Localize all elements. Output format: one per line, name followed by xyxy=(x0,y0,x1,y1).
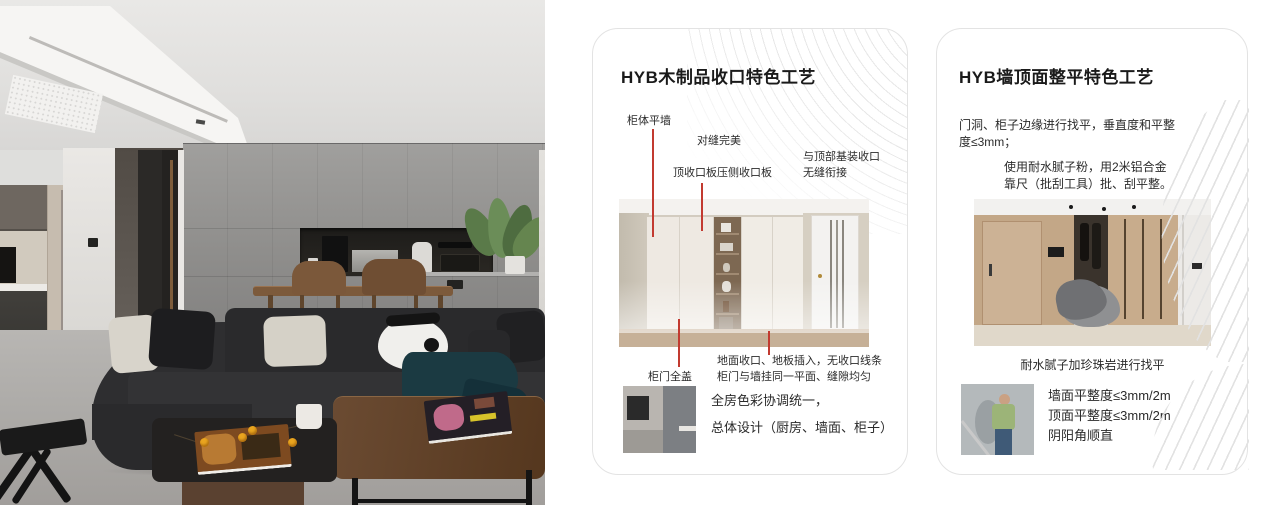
card-wood-finish-craft: HYB木制品收口特色工艺 柜体平墙 对缝完美 顶收口板压侧收口板 与顶部基装收口… xyxy=(592,28,908,475)
photo-floor xyxy=(974,325,1211,346)
dining-chair xyxy=(292,261,346,295)
hanging-coat xyxy=(1092,223,1101,269)
wall-switch-left xyxy=(88,238,98,247)
living-room-photo xyxy=(0,0,545,505)
note-line1: 地面收口、地板插入，无收口线条 xyxy=(717,354,882,370)
plant-pot xyxy=(505,256,525,274)
metric-corners: 阴阳角顺直 xyxy=(1048,426,1171,446)
kumquat xyxy=(288,438,297,447)
floor-light-glow xyxy=(619,281,869,333)
para2-line1: 使用耐水腻子粉，用2米铝合金 xyxy=(1004,159,1172,176)
worker-shirt xyxy=(992,404,1015,430)
wardrobe-handle-groove xyxy=(1142,219,1144,319)
callout-line xyxy=(768,331,770,355)
note-line2: 柜门与墙挂同一平面、缝隙均匀 xyxy=(717,370,882,386)
image-caption: 耐水腻子加珍珠岩进行找平 xyxy=(974,357,1211,373)
callout-top-closing-panel: 顶收口板压侧收口板 xyxy=(673,165,772,181)
white-mug xyxy=(296,404,322,429)
pillow-black-leather xyxy=(148,308,216,370)
counter-edge xyxy=(420,272,545,276)
kumquat xyxy=(248,426,257,435)
pillow-cream-2 xyxy=(263,315,327,367)
wood-door xyxy=(982,221,1042,325)
floor-closing-note: 地面收口、地板插入，无收口线条 柜门与墙挂同一平面、缝隙均匀 xyxy=(717,354,882,385)
downlight xyxy=(1132,205,1136,209)
interior-thumbnail xyxy=(623,386,696,453)
leveling-paragraph-1: 门洞、柜子边缘进行找平，垂直度和平整 度≤3mm； xyxy=(959,117,1175,151)
leveling-paragraph-2: 使用耐水腻子粉，用2米铝合金 靠尺（批刮工具）批、刮平整。 xyxy=(1004,159,1172,193)
thumb-floor xyxy=(623,430,663,453)
wardrobe-render-image xyxy=(619,199,869,347)
callout-perfect-seam: 对缝完美 xyxy=(697,133,741,149)
dining-chair xyxy=(362,259,426,295)
callout-ceiling-joint: 与顶部基装收口 无缝衔接 xyxy=(803,149,880,181)
panda-eye xyxy=(424,338,439,352)
para2-line2: 靠尺（批刮工具）批、刮平整。 xyxy=(1004,176,1172,193)
callout-ceiling-joint-line1: 与顶部基装收口 xyxy=(803,149,880,165)
metric-wall-flatness: 墙面平整度≤3mm/2m xyxy=(1048,386,1171,406)
decor-box xyxy=(720,243,733,251)
color-harmony-note-line1: 全房色彩协调统一， xyxy=(711,392,828,410)
door-handle xyxy=(818,274,822,278)
kitchen-upper-cabinet xyxy=(0,185,47,231)
decor-frame xyxy=(721,223,731,232)
magazine-cover-art xyxy=(432,403,465,432)
poster-canvas: HYB木制品收口特色工艺 柜体平墙 对缝完美 顶收口板压侧收口板 与顶部基装收口… xyxy=(0,0,1280,505)
para1-line1: 门洞、柜子边缘进行找平，垂直度和平整 xyxy=(959,117,1175,134)
shelf xyxy=(716,233,739,235)
callout-line xyxy=(678,319,680,367)
door-handle xyxy=(989,264,992,276)
thumb-counter xyxy=(679,426,696,431)
para1-line2: 度≤3mm； xyxy=(959,134,1175,151)
kumquat xyxy=(200,438,209,447)
magazine-cover-art xyxy=(474,397,495,409)
worker-jeans xyxy=(995,429,1012,455)
decor-vase xyxy=(723,263,730,272)
card2-title: HYB墙顶面整平特色工艺 xyxy=(959,63,1154,88)
magazine-title-text xyxy=(470,413,497,422)
hanging-coat xyxy=(1080,223,1089,261)
stone-table-base xyxy=(182,478,304,505)
downlight xyxy=(1102,207,1106,211)
worker-thumbnail xyxy=(961,384,1034,455)
niche-rail xyxy=(438,242,472,248)
callout-cabinet-flush-wall: 柜体平墙 xyxy=(627,113,671,129)
callout-line xyxy=(652,129,654,237)
callout-ceiling-joint-line2: 无缝衔接 xyxy=(803,165,880,181)
callout-line xyxy=(701,183,703,231)
metric-ceiling-flatness: 顶面平整度≤3mm/2m xyxy=(1048,406,1171,426)
card1-title: HYB木制品收口特色工艺 xyxy=(621,63,816,88)
wardrobe-handle-groove xyxy=(1124,219,1126,319)
magazine-on-stone-table xyxy=(194,424,291,475)
downlight xyxy=(1069,205,1073,209)
thumb-tv xyxy=(627,396,649,420)
kitchen-coffee-machine xyxy=(0,247,16,283)
kumquat xyxy=(238,433,247,442)
color-harmony-note-line2: 总体设计（厨房、墙面、柜子） xyxy=(711,419,893,437)
shelf xyxy=(716,253,739,255)
switch-panel xyxy=(1048,247,1064,257)
walnut-table-bar xyxy=(352,499,532,503)
callout-full-cover-door: 柜门全盖 xyxy=(648,369,692,385)
thumb-grey-cabinet xyxy=(663,386,696,453)
radio xyxy=(440,254,480,272)
shelf xyxy=(716,273,739,275)
leveling-metrics: 墙面平整度≤3mm/2m 顶面平整度≤3mm/2m 阴阳角顺直 xyxy=(1048,386,1171,446)
